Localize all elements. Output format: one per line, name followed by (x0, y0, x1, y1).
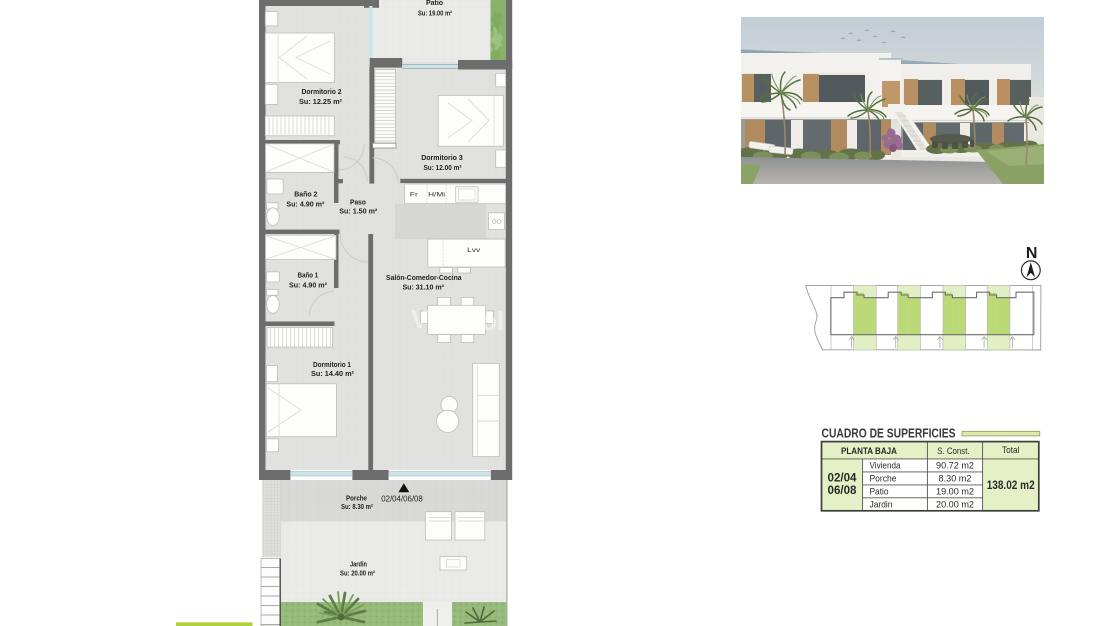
svg-text:Fr: Fr (410, 192, 419, 199)
svg-text:90.72 m2: 90.72 m2 (936, 461, 974, 472)
svg-text:Su: 19.00 m²: Su: 19.00 m² (418, 8, 452, 17)
svg-text:Lvv: Lvv (467, 247, 481, 254)
svg-text:Total: Total (1002, 445, 1019, 456)
svg-text:Dormitorio 2: Dormitorio 2 (302, 87, 342, 96)
svg-text:19.00 m2: 19.00 m2 (936, 486, 974, 497)
svg-text:Su: 4.90 m²: Su: 4.90 m² (286, 199, 325, 208)
svg-text:06/08: 06/08 (828, 485, 858, 497)
svg-text:Patio: Patio (870, 486, 889, 497)
svg-text:Vivienda: Vivienda (870, 461, 902, 472)
svg-text:Su: 31.10 m²: Su: 31.10 m² (402, 283, 444, 292)
svg-text:Paso: Paso (350, 198, 366, 207)
svg-text:138.02 m2: 138.02 m2 (987, 478, 1035, 492)
svg-text:V: V (411, 304, 429, 334)
svg-text:20.00 m2: 20.00 m2 (936, 499, 974, 510)
svg-text:ol: ol (481, 306, 504, 336)
svg-text:Su: 1.50 m²: Su: 1.50 m² (339, 207, 378, 216)
svg-text:Su: 8.30 m²: Su: 8.30 m² (341, 502, 373, 511)
svg-text:Porche: Porche (870, 473, 897, 484)
svg-text:Su: 14.40 m²: Su: 14.40 m² (311, 369, 355, 378)
svg-text:Baño 1: Baño 1 (298, 271, 319, 280)
svg-text:Su: 12.00 m²: Su: 12.00 m² (424, 163, 462, 172)
svg-text:Su: 20.00 m²: Su: 20.00 m² (340, 569, 375, 578)
svg-text:N: N (1026, 245, 1038, 262)
svg-text:H/Mi: H/Mi (428, 192, 446, 199)
svg-text:8.30 m2: 8.30 m2 (939, 473, 972, 484)
svg-text:Salón-Comedor-Cocina: Salón-Comedor-Cocina (386, 273, 462, 282)
svg-text:Patio: Patio (426, 0, 444, 7)
svg-text:02/04: 02/04 (828, 473, 858, 485)
svg-text:Su: 4.90 m²: Su: 4.90 m² (289, 280, 328, 289)
svg-text:Dormitorio 3: Dormitorio 3 (421, 153, 463, 162)
svg-text:Dormitorio 1: Dormitorio 1 (313, 360, 351, 369)
svg-text:02/04/06/08: 02/04/06/08 (381, 494, 423, 504)
svg-text:S. Const.: S. Const. (937, 446, 969, 457)
svg-text:Jardin: Jardin (870, 499, 893, 510)
svg-text:Su: 12.25 m²: Su: 12.25 m² (299, 97, 343, 106)
svg-text:Jardín: Jardín (350, 560, 367, 569)
svg-text:Baño 2: Baño 2 (294, 190, 317, 199)
svg-text:PLANTA BAJA: PLANTA BAJA (841, 446, 897, 457)
svg-text:CUADRO DE SUPERFICIES: CUADRO DE SUPERFICIES (822, 425, 956, 440)
